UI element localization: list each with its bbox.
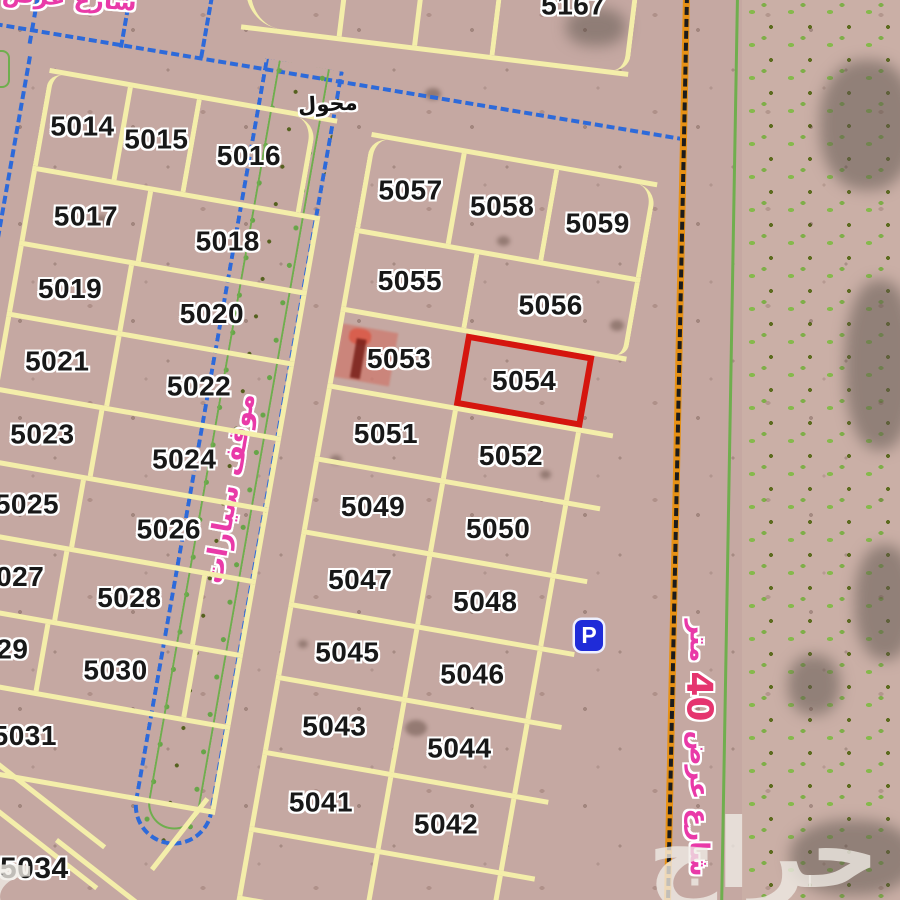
plot-label: 5167: [541, 0, 605, 22]
plot-label: 5054: [492, 365, 556, 397]
plot-label: 5045: [316, 636, 380, 668]
plot-label: 5026: [136, 514, 200, 546]
plot-label: 5047: [328, 563, 392, 595]
plot-unlabeled[interactable]: [181, 650, 242, 726]
plot-label: 5017: [54, 200, 118, 232]
plot-label: 5052: [479, 440, 543, 472]
shrub-patch: [855, 545, 900, 660]
street-name-partial: شارع عرض: [1, 0, 137, 17]
plot-5058[interactable]: 5058: [446, 153, 555, 260]
plot-label: 5014: [51, 111, 115, 143]
plot-label: 5059: [565, 208, 629, 240]
plot-5059[interactable]: 5059: [538, 169, 656, 278]
vegetation-outline-fragment: [0, 50, 10, 88]
plot-label: 5051: [354, 418, 418, 450]
plot-5167[interactable]: 5167: [490, 0, 640, 72]
plot-unlabeled[interactable]: [241, 0, 347, 36]
plot-label: 5025: [0, 489, 59, 521]
plot-label: 5030: [84, 655, 148, 687]
plot-label: 5016: [217, 140, 281, 172]
plot-unlabeled[interactable]: [337, 0, 423, 45]
plot-label: 5021: [26, 345, 90, 377]
plot-label: 5049: [341, 490, 405, 522]
plot-label: 5043: [303, 710, 367, 742]
plot-label: 5020: [180, 297, 244, 329]
shrub-patch: [788, 655, 840, 715]
plot-5016[interactable]: 5016: [181, 99, 317, 213]
plot-label: 5057: [379, 175, 443, 207]
street-boundary-dashed: [199, 0, 214, 58]
plot-label: 5050: [466, 512, 530, 544]
plot-label: 5053: [367, 343, 431, 375]
plot-label: 5022: [167, 370, 231, 402]
plot-label: 5029: [0, 634, 29, 666]
street-width-number: 40: [679, 671, 720, 721]
plot-label: 5028: [98, 582, 162, 614]
watermark-fragment: ح: [0, 822, 39, 900]
watermark-logo: حراج: [648, 798, 879, 900]
plot-label: 5019: [38, 272, 102, 304]
plot-label: 5046: [440, 658, 504, 690]
plot-label: 5041: [289, 786, 353, 818]
plot-label: 5024: [152, 443, 216, 475]
plot-unlabeled[interactable]: [190, 575, 255, 653]
plot-label: 5031: [0, 719, 57, 751]
plot-label: 5023: [11, 418, 75, 450]
plot-label: 5056: [518, 289, 582, 321]
plot-label: 5018: [196, 225, 260, 257]
plot-label: 5055: [378, 264, 442, 296]
plot-5057[interactable]: 5057: [355, 137, 462, 244]
parking-icon[interactable]: P: [575, 620, 603, 651]
cadastral-satellite-map: 5167 5014 5015 5016 5017 5018 5019 5020 …: [0, 0, 900, 900]
transformer-label: محول: [297, 90, 358, 117]
plot-label: 5015: [125, 124, 189, 156]
plot-label: 5048: [453, 585, 517, 617]
vegetation-boundary-line: [720, 0, 739, 900]
parking-icon-letter: P: [581, 622, 596, 649]
plot-unlabeled[interactable]: [412, 0, 500, 55]
plot-label: 5042: [414, 808, 478, 840]
shrub-patch: [820, 60, 900, 190]
plot-label: 5027: [0, 561, 45, 593]
plot-label: 5044: [427, 732, 491, 764]
shrub-patch: [845, 280, 900, 450]
plot-label: 5058: [470, 191, 534, 223]
street-width-unit: متر: [684, 619, 714, 662]
